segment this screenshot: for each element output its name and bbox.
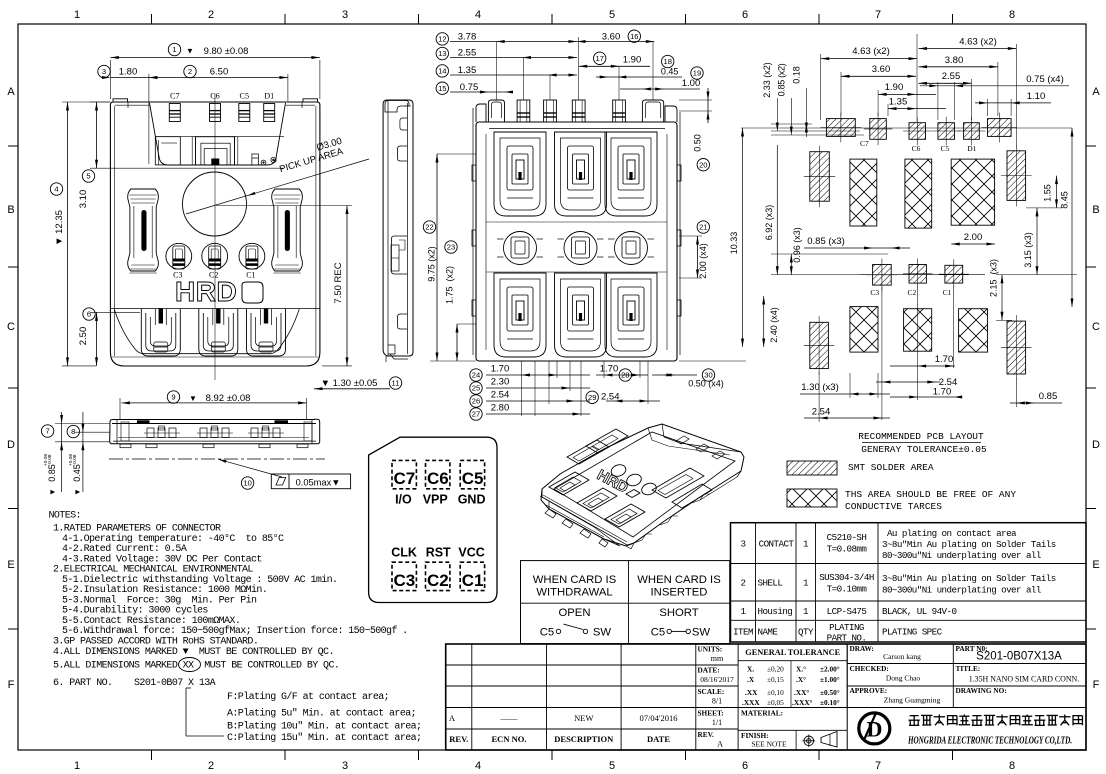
svg-text:4: 4 [475, 760, 481, 772]
svg-text:2.55: 2.55 [942, 71, 961, 82]
svg-text:C3: C3 [394, 571, 416, 590]
svg-text:C6: C6 [427, 469, 449, 488]
svg-text:29: 29 [588, 393, 596, 402]
svg-text:2.33 (x2): 2.33 (x2) [762, 62, 772, 98]
svg-text:MATERIAL:: MATERIAL: [741, 709, 783, 718]
svg-text:7: 7 [45, 427, 49, 436]
svg-text:D: D [7, 439, 15, 451]
svg-text:C2: C2 [427, 571, 449, 590]
svg-text:20: 20 [699, 160, 707, 169]
svg-text:3.60: 3.60 [872, 64, 891, 75]
svg-text:C5: C5 [651, 627, 665, 639]
svg-text:THS AREA SHOULD BE FREE OF ANY: THS AREA SHOULD BE FREE OF ANY [845, 489, 1016, 500]
svg-text:±0,10: ±0,10 [767, 688, 784, 697]
svg-text:80~300u″Ni underplating over a: 80~300u″Ni underplating over all [882, 550, 1041, 561]
svg-text:2.54: 2.54 [601, 392, 620, 403]
svg-text:UNITS:: UNITS: [698, 645, 723, 654]
svg-text:±0.10°: ±0.10° [820, 698, 840, 707]
svg-text:SUS304-3/4H: SUS304-3/4H [819, 572, 874, 583]
svg-text:1.55: 1.55 [1042, 184, 1052, 202]
svg-text:6: 6 [87, 310, 91, 319]
svg-text:4.63 (x2): 4.63 (x2) [959, 37, 997, 48]
svg-text:▼ 1.30 ±0.05: ▼ 1.30 ±0.05 [321, 378, 378, 389]
svg-text:1.35: 1.35 [889, 97, 908, 108]
svg-text:I/O: I/O [395, 493, 412, 507]
svg-text:4.ALL DIMENSIONS MARKED ▼ MUS: 4.ALL DIMENSIONS MARKED ▼ MUST BE CONTRO… [53, 647, 334, 658]
svg-text:DATE: DATE [647, 734, 670, 744]
svg-text:DRAWING NO:: DRAWING NO: [956, 686, 1007, 695]
svg-text:2.00 (x4): 2.00 (x4) [698, 243, 708, 279]
svg-text:3: 3 [342, 760, 348, 772]
svg-text:28: 28 [621, 371, 629, 380]
svg-text:5-6.Withdrawal force: 150~500g: 5-6.Withdrawal force: 150~500gfMax; Inse… [62, 625, 408, 637]
svg-text:T=0.10mm: T=0.10mm [827, 584, 868, 595]
svg-text:C5: C5 [462, 469, 484, 488]
svg-text:-0.08: -0.08 [47, 454, 53, 465]
svg-text:Au plating on contact area: Au plating on contact area [882, 528, 1017, 539]
svg-text:0.96 (x3): 0.96 (x3) [792, 227, 802, 263]
svg-text:10.33: 10.33 [729, 232, 739, 255]
svg-text:SW: SW [692, 627, 711, 639]
svg-text:GND: GND [458, 493, 486, 507]
svg-text:18: 18 [663, 57, 671, 66]
svg-text:——: —— [500, 713, 519, 723]
svg-text:23: 23 [447, 243, 455, 252]
svg-text:GENERAY TOLERANCE±0.05: GENERAY TOLERANCE±0.05 [861, 444, 987, 455]
svg-text:C:Plating 15u″ Min. at contact: C:Plating 15u″ Min. at contact area; [227, 732, 421, 744]
svg-text:26: 26 [472, 397, 480, 406]
svg-text:▼: ▼ [186, 47, 194, 56]
svg-text:.XX°: .XX° [794, 688, 809, 697]
svg-text:TITLE:: TITLE: [956, 664, 981, 673]
svg-text:.XX: .XX [745, 688, 758, 697]
svg-text:QTY: QTY [798, 627, 814, 638]
svg-text:▼: ▼ [73, 488, 82, 496]
svg-text:17: 17 [595, 54, 603, 63]
svg-text:C2: C2 [908, 288, 917, 297]
svg-text:08/16'2017: 08/16'2017 [700, 675, 734, 684]
svg-text:INSERTED: INSERTED [651, 587, 708, 599]
svg-text:.X: .X [747, 675, 755, 684]
svg-text:1: 1 [74, 760, 80, 772]
svg-text:▼: ▼ [48, 488, 57, 496]
svg-text:6.92 (x3): 6.92 (x3) [764, 205, 774, 241]
svg-text:HONGRIDA ELECTRONIC TECHNOLOGY: HONGRIDA ELECTRONIC TECHNOLOGY CO,LTD. [907, 736, 1072, 747]
svg-text:3.80: 3.80 [945, 55, 964, 66]
svg-text:8.92 ±0.08: 8.92 ±0.08 [206, 393, 251, 404]
svg-text:8: 8 [1009, 760, 1015, 772]
svg-text:2.54: 2.54 [491, 390, 510, 401]
svg-text:X.: X. [747, 665, 754, 674]
svg-text:.X°: .X° [796, 675, 806, 684]
svg-text:A:Plating 5u″ Min. at contact: A:Plating 5u″ Min. at contact area; [227, 708, 416, 720]
svg-text:0.85: 0.85 [1039, 391, 1058, 402]
svg-text:1/1: 1/1 [712, 718, 722, 727]
svg-text:C7: C7 [170, 92, 180, 101]
svg-text:80~300u″Ni underplating over a: 80~300u″Ni underplating over all [882, 585, 1041, 596]
svg-text:T=0.08mm: T=0.08mm [827, 544, 868, 555]
svg-text:6.50: 6.50 [210, 67, 229, 78]
svg-text:A: A [717, 740, 723, 749]
svg-text:3: 3 [342, 9, 348, 21]
svg-text:4.63 (x2): 4.63 (x2) [852, 46, 890, 57]
svg-text:2: 2 [208, 760, 214, 772]
svg-text:7.50 REC: 7.50 REC [333, 262, 344, 303]
svg-text:SHEET:: SHEET: [698, 709, 724, 718]
svg-text:C5210-SH: C5210-SH [827, 532, 867, 543]
svg-text:27: 27 [472, 410, 480, 419]
svg-text:GENERAL TOLERANCE: GENERAL TOLERANCE [745, 648, 840, 657]
svg-text:A: A [7, 86, 15, 98]
svg-text:mm: mm [711, 654, 724, 663]
svg-text:±0,05: ±0,05 [767, 698, 784, 707]
svg-text:14: 14 [438, 67, 446, 76]
svg-text:F: F [8, 679, 15, 691]
svg-text:VPP: VPP [423, 493, 448, 507]
svg-text:1.30 (x3): 1.30 (x3) [801, 382, 839, 393]
svg-text:RST: RST [426, 546, 451, 560]
svg-text:CONDUCTIVE TARCES: CONDUCTIVE TARCES [845, 501, 942, 512]
svg-text:SMT SOLDER AREA: SMT SOLDER AREA [848, 462, 934, 473]
svg-text:RECOMMENDED PCB LAYOUT: RECOMMENDED PCB LAYOUT [858, 431, 984, 442]
svg-text:1.35H NANO SIM CARD CONN.: 1.35H NANO SIM CARD CONN. [969, 675, 1080, 684]
svg-text:VCC: VCC [458, 546, 484, 560]
svg-text:7: 7 [875, 9, 881, 21]
svg-text:0.85 (x2): 0.85 (x2) [776, 63, 786, 96]
svg-text:C: C [7, 321, 15, 333]
svg-text:1: 1 [74, 9, 80, 21]
svg-text:E: E [1092, 559, 1099, 571]
svg-text:1: 1 [172, 45, 176, 54]
svg-text:OPEN: OPEN [558, 607, 590, 619]
svg-text:6. PART NO. S201-0B07 X 13A: 6. PART NO. S201-0B07 X 13A [53, 678, 216, 689]
svg-text:D1: D1 [264, 92, 274, 101]
svg-text:6: 6 [742, 9, 748, 21]
svg-text:5: 5 [609, 9, 615, 21]
svg-text:0.45: 0.45 [661, 67, 679, 77]
svg-text:3.15 (x3): 3.15 (x3) [1023, 232, 1033, 268]
svg-text:PLATING: PLATING [829, 622, 864, 633]
svg-text:C5: C5 [240, 92, 250, 101]
svg-text:4-2.Rated Current: 0.5A: 4-2.Rated Current: 0.5A [62, 543, 187, 555]
svg-text:C6: C6 [912, 144, 921, 153]
svg-text:SHORT: SHORT [659, 607, 698, 619]
svg-text:3.GP PASSED ACCORD WITH RoHS S: 3.GP PASSED ACCORD WITH RoHS STANDARD. [53, 637, 258, 648]
svg-text:3~8u″Min Au plating on Solder: 3~8u″Min Au plating on Solder Tails [882, 573, 1056, 584]
svg-text:19: 19 [693, 69, 701, 78]
svg-text:C: C [1092, 321, 1100, 333]
svg-text:±0,20: ±0,20 [767, 665, 784, 674]
svg-text:0.75: 0.75 [460, 82, 479, 93]
svg-text:SHELL: SHELL [758, 578, 783, 589]
svg-text:3.78: 3.78 [458, 32, 477, 43]
svg-text:2: 2 [188, 67, 192, 76]
svg-text:±0.50°: ±0.50° [820, 688, 840, 697]
svg-text:±0,15: ±0,15 [767, 675, 784, 684]
svg-text:1.00: 1.00 [682, 78, 701, 89]
svg-text:DRAW:: DRAW: [850, 644, 874, 653]
svg-text:LCP-S475: LCP-S475 [827, 606, 867, 617]
svg-text:REV.: REV. [449, 734, 468, 744]
svg-text:8: 8 [1009, 9, 1015, 21]
svg-text:10: 10 [243, 479, 251, 488]
svg-text:▼ 12.35: ▼ 12.35 [54, 210, 65, 246]
svg-text:Housing: Housing [758, 606, 793, 617]
svg-text:0.50: 0.50 [693, 134, 703, 152]
svg-text:±1.00°: ±1.00° [820, 675, 840, 684]
svg-text:2.30: 2.30 [491, 377, 510, 388]
svg-text:S201-0B07X13A: S201-0B07X13A [976, 651, 1062, 663]
svg-text:0.05max▼: 0.05max▼ [296, 477, 341, 487]
svg-text:D: D [1092, 439, 1100, 451]
svg-text:21: 21 [699, 223, 707, 232]
svg-text:PART NO.: PART NO. [827, 633, 867, 644]
svg-text:0.50 (x4): 0.50 (x4) [688, 379, 724, 389]
svg-text:2: 2 [741, 578, 746, 589]
svg-text:C5: C5 [941, 144, 950, 153]
svg-text:DESCRIPTION: DESCRIPTION [554, 734, 614, 744]
svg-text:CLK: CLK [391, 546, 417, 560]
svg-text:12: 12 [438, 35, 446, 44]
svg-text:11: 11 [392, 379, 400, 388]
svg-text:1.70: 1.70 [933, 387, 952, 398]
svg-text:±2.00°: ±2.00° [820, 665, 840, 674]
svg-text:A: A [449, 713, 456, 723]
svg-text:1.90: 1.90 [885, 82, 904, 93]
svg-text:E: E [7, 559, 14, 571]
svg-text:1.10: 1.10 [1027, 91, 1046, 102]
svg-text:16: 16 [630, 32, 638, 41]
svg-text:15: 15 [438, 84, 446, 93]
svg-text:DATE:: DATE: [698, 666, 720, 675]
svg-text:B:Plating 10u″ Min. at contact: B:Plating 10u″ Min. at contact area; [227, 721, 421, 733]
svg-text:2.ELECTRICAL MECHANICAL ENVIRO: 2.ELECTRICAL MECHANICAL ENVIRONMENTAL [53, 565, 253, 576]
svg-text:4: 4 [54, 185, 58, 194]
svg-text:BLACK, UL 94V-0: BLACK, UL 94V-0 [882, 606, 956, 617]
svg-text:REV.: REV. [698, 730, 714, 739]
svg-text:22: 22 [425, 223, 433, 232]
svg-text:C3: C3 [870, 288, 879, 297]
svg-text:.XXX°: .XXX° [792, 698, 813, 707]
svg-text:2.15 (x3): 2.15 (x3) [989, 259, 999, 297]
svg-text:1.RATED PARAMETERS OF CONNECTO: 1.RATED PARAMETERS OF CONNECTOR [53, 524, 221, 535]
svg-text:1.90: 1.90 [623, 55, 642, 66]
svg-text:3: 3 [741, 539, 746, 550]
svg-text:5-4.Durability: 3000 cycles: 5-4.Durability: 3000 cycles [62, 605, 208, 617]
svg-text:13: 13 [438, 49, 446, 58]
svg-text:NOTES:: NOTES: [49, 511, 81, 522]
svg-text:2.55: 2.55 [458, 48, 477, 59]
svg-text:SCALE:: SCALE: [698, 687, 725, 696]
svg-text:3.60: 3.60 [602, 32, 621, 43]
svg-text:9.80 ±0.08: 9.80 ±0.08 [204, 46, 249, 57]
svg-text:1.70: 1.70 [600, 364, 619, 375]
svg-text:8/1: 8/1 [712, 697, 722, 706]
svg-text:WHEN CARD IS: WHEN CARD IS [637, 574, 721, 586]
svg-text:HRD: HRD [175, 276, 237, 307]
svg-text:2.80: 2.80 [491, 403, 510, 414]
svg-text:Dong Chao: Dong Chao [886, 674, 921, 683]
svg-text:2: 2 [208, 9, 214, 21]
svg-text:B: B [7, 204, 14, 216]
svg-text:8.45: 8.45 [1060, 191, 1070, 209]
svg-text:1.35: 1.35 [458, 65, 477, 76]
svg-text:SW: SW [593, 627, 612, 639]
svg-text:SEE NOTE: SEE NOTE [751, 740, 787, 749]
svg-text:C1: C1 [943, 288, 952, 297]
svg-text:D1: D1 [967, 144, 976, 153]
svg-text:3.10: 3.10 [78, 190, 89, 209]
svg-text:25: 25 [472, 384, 480, 393]
svg-text:▼: ▼ [189, 394, 197, 403]
svg-text:X.°: X.° [796, 665, 806, 674]
svg-text:F:Plating G/F at contact area;: F:Plating G/F at contact area; [227, 691, 389, 703]
svg-text:3: 3 [102, 67, 106, 76]
svg-text:2.40 (x4): 2.40 (x4) [769, 307, 779, 343]
svg-text:NEW: NEW [574, 713, 593, 723]
svg-text:A: A [1092, 86, 1100, 98]
svg-text:ITEM: ITEM [733, 627, 753, 638]
svg-text:ECN NO.: ECN NO. [492, 734, 527, 744]
svg-text:APPROVE:: APPROVE: [850, 686, 888, 695]
svg-text:C1: C1 [246, 270, 255, 279]
svg-text:B: B [1092, 204, 1099, 216]
svg-text:C7: C7 [394, 469, 416, 488]
svg-text:C1: C1 [462, 571, 484, 590]
svg-text:8: 8 [71, 427, 75, 436]
svg-text:2.54: 2.54 [812, 407, 831, 418]
svg-text:9: 9 [171, 393, 175, 402]
svg-text:5-2.Insulation Resistance: 100: 5-2.Insulation Resistance: 1000 MΩMin. [62, 584, 267, 596]
svg-text:C5: C5 [540, 627, 554, 639]
svg-text:24: 24 [472, 371, 480, 380]
svg-text:WITHDRAWAL: WITHDRAWAL [536, 587, 612, 599]
svg-text:NAME: NAME [758, 627, 779, 638]
svg-text:6: 6 [742, 760, 748, 772]
svg-text:.XXX: .XXX [742, 698, 760, 707]
svg-text:5: 5 [609, 760, 615, 772]
svg-text:0.85 (x3): 0.85 (x3) [807, 236, 845, 247]
svg-text:WHEN CARD IS: WHEN CARD IS [533, 574, 617, 586]
svg-text:5: 5 [86, 172, 90, 181]
svg-text:1.70: 1.70 [491, 364, 510, 375]
svg-text:Carson kang: Carson kang [883, 652, 921, 661]
svg-text:F: F [1093, 679, 1100, 691]
svg-text:9.75 (x2): 9.75 (x2) [427, 246, 437, 282]
svg-text:PLATING SPEC: PLATING SPEC [882, 627, 943, 638]
svg-text:0.18: 0.18 [792, 66, 802, 84]
svg-text:3~8u″Min Au plating on Solder: 3~8u″Min Au plating on Solder Tails [882, 539, 1056, 550]
svg-text:2.50: 2.50 [78, 327, 89, 346]
svg-text:7: 7 [875, 760, 881, 772]
svg-text:1.80: 1.80 [119, 67, 138, 78]
svg-text:0.75 (x4): 0.75 (x4) [1026, 74, 1064, 85]
svg-text:1.70: 1.70 [935, 354, 954, 365]
svg-text:Zhang Guangming: Zhang Guangming [884, 696, 941, 705]
svg-text:4: 4 [475, 9, 481, 21]
svg-text:2.00: 2.00 [964, 232, 983, 243]
svg-text:07/04'2016: 07/04'2016 [640, 713, 678, 723]
svg-text:CONTACT: CONTACT [759, 539, 795, 550]
svg-text:C7: C7 [860, 139, 869, 148]
svg-text:1.75 (x2): 1.75 (x2) [445, 266, 455, 304]
svg-text:-0.08: -0.08 [72, 454, 78, 465]
svg-text:CHECKED:: CHECKED: [850, 664, 889, 673]
